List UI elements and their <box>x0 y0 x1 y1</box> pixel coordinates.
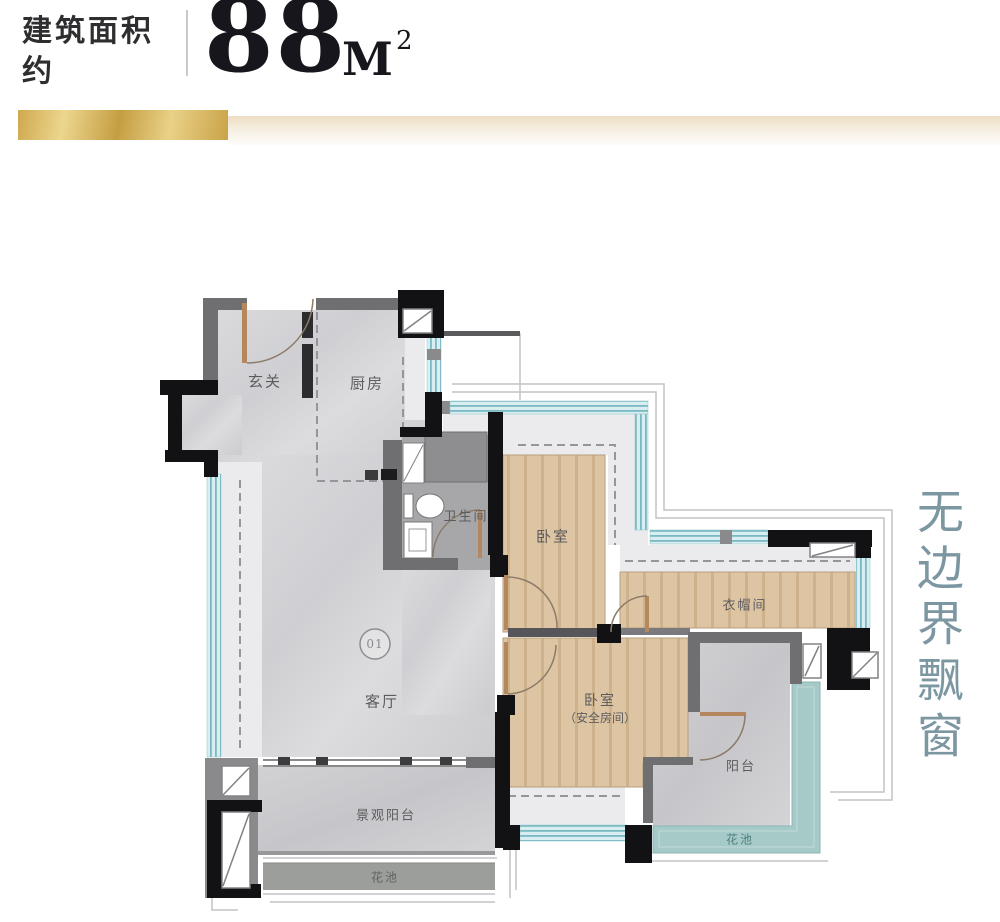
room-label-living: 客厅 <box>365 691 399 712</box>
room-label-flower-bed-left: 花池 <box>371 869 399 886</box>
toilet-icon <box>404 494 413 518</box>
room-label-flower-bed-right: 花池 <box>726 831 754 848</box>
bathroom-area <box>402 432 490 570</box>
side-note-bay-window: 无边界飘窗 <box>908 487 962 767</box>
room-label-view-balcony: 景观阳台 <box>356 805 416 824</box>
room-label-closet: 衣帽间 <box>722 595 767 614</box>
room-label-entry: 玄关 <box>248 371 282 392</box>
room-label-bedroom2-line1: 卧室 <box>564 693 636 710</box>
sliding-door <box>263 757 466 766</box>
room-label-bedroom2-line2: （安全房间） <box>564 710 636 727</box>
room-label-kitchen: 厨房 <box>350 373 384 394</box>
floor-plan <box>0 0 1000 922</box>
sink-icon <box>404 522 432 558</box>
room-label-bedroom1: 卧室 <box>536 526 570 547</box>
room-label-balcony: 阳台 <box>726 756 756 775</box>
room-label-bedroom2: 卧室 （安全房间） <box>564 693 636 727</box>
room-label-bathroom: 卫生间 <box>443 506 488 525</box>
stove-icon <box>365 470 378 480</box>
unit-badge: 01 <box>366 637 383 651</box>
